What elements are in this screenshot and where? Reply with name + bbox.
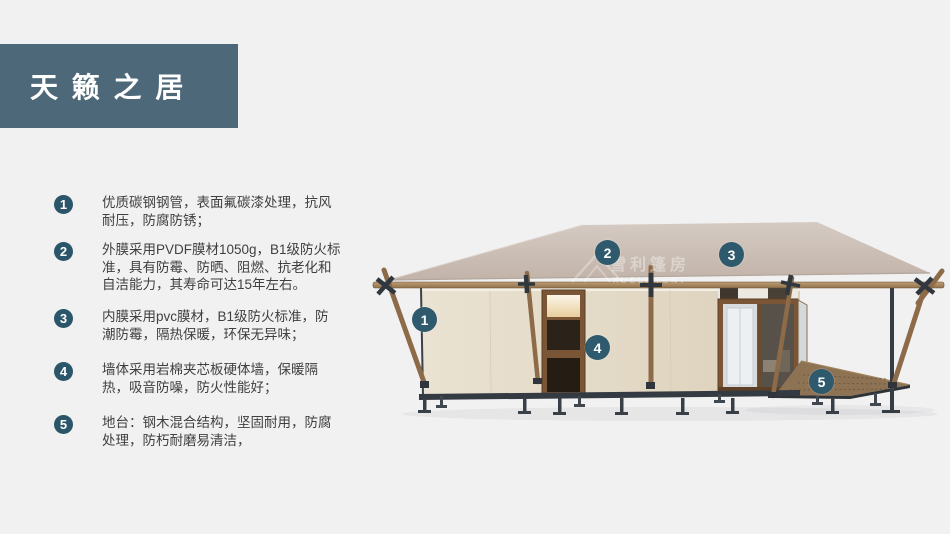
- feature-item-4: 4 墙体采用岩棉夹芯板硬体墙，保暖隔热，吸音防噪，防火性能好；: [54, 361, 364, 396]
- feature-number-badge: 1: [54, 195, 73, 214]
- feature-text: 内膜采用pvc膜材，B1级防火标准，防潮防霉，隔热保暖，环保无异味；: [102, 308, 342, 343]
- product-slide: 天 籁 之 居 1 优质碳钢钢管，表面氟碳漆处理，抗风耐压，防腐防锈； 2 外膜…: [0, 0, 950, 534]
- page-title: 天 籁 之 居: [30, 66, 186, 106]
- feature-number-badge: 2: [54, 242, 73, 261]
- tent-illustration: 雪利篷房 XUELI TENT 1 2 3 4 5: [370, 200, 950, 430]
- feature-number-badge: 4: [54, 362, 73, 381]
- callout-5: 5: [809, 369, 834, 394]
- feature-item-3: 3 内膜采用pvc膜材，B1级防火标准，防潮防霉，隔热保暖，环保无异味；: [54, 308, 364, 343]
- feature-text: 墙体采用岩棉夹芯板硬体墙，保暖隔热，吸音防噪，防火性能好；: [102, 361, 342, 396]
- callout-2: 2: [595, 240, 620, 265]
- feature-item-2: 2 外膜采用PVDF膜材1050g，B1级防火标准，具有防霉、防晒、阻燃、抗老化…: [54, 241, 364, 294]
- callout-3: 3: [719, 242, 744, 267]
- tent-drawing: [370, 200, 950, 430]
- feature-text: 地台：钢木混合结构，坚固耐用，防腐处理，防朽耐磨易清洁，: [102, 414, 342, 449]
- callout-4: 4: [585, 335, 610, 360]
- feature-item-5: 5 地台：钢木混合结构，坚固耐用，防腐处理，防朽耐磨易清洁，: [54, 414, 364, 449]
- feature-number-badge: 3: [54, 309, 73, 328]
- title-banner: 天 籁 之 居: [0, 44, 238, 128]
- feature-number-badge: 5: [54, 415, 73, 434]
- callout-1: 1: [412, 307, 437, 332]
- feature-text: 外膜采用PVDF膜材1050g，B1级防火标准，具有防霉、防晒、阻燃、抗老化和自…: [102, 241, 342, 294]
- feature-item-1: 1 优质碳钢钢管，表面氟碳漆处理，抗风耐压，防腐防锈；: [54, 194, 364, 229]
- feature-text: 优质碳钢钢管，表面氟碳漆处理，抗风耐压，防腐防锈；: [102, 194, 342, 229]
